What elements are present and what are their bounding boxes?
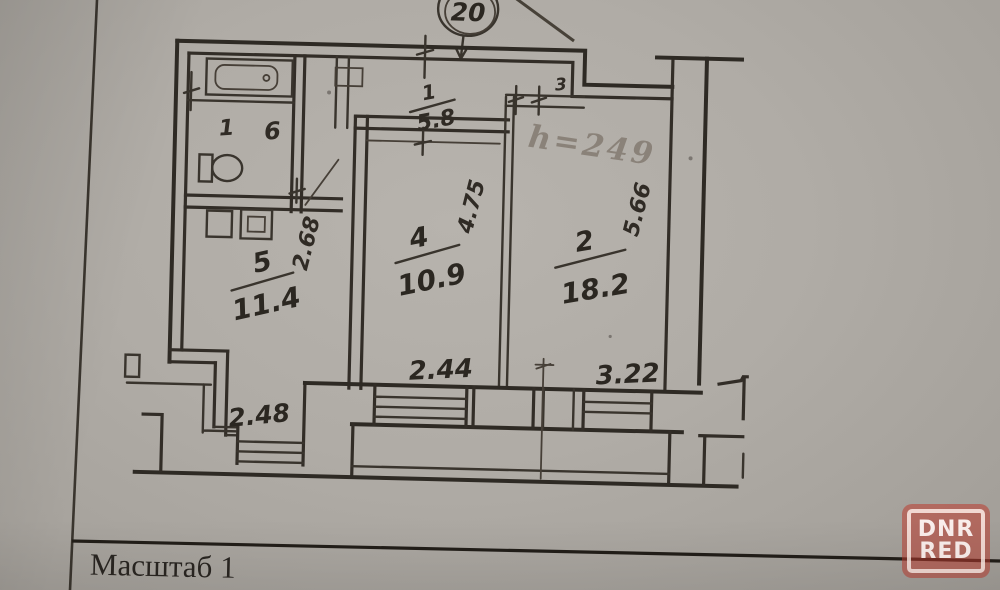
wall-left-inner	[182, 53, 189, 350]
tick-left-wall	[184, 72, 200, 110]
scale-caption: Масштаб 1	[90, 547, 391, 590]
bedroom-window-jambs	[583, 390, 652, 432]
bay-wall-left	[214, 351, 228, 435]
pier-line	[127, 383, 211, 385]
dnr-red-watermark: DNR RED	[902, 504, 990, 578]
dim-kitchen-width: 2.48	[227, 398, 291, 433]
toilet-bowl	[212, 155, 243, 182]
speck	[609, 335, 612, 338]
living-window-jambs	[374, 385, 467, 427]
room4-number: 4	[406, 221, 432, 255]
balcony-inner-edge	[352, 466, 669, 474]
plan-circle-number: 20	[450, 0, 485, 27]
speck	[327, 90, 331, 94]
hall-number: 3	[554, 75, 567, 96]
plan-drawing: 20	[0, 0, 1000, 590]
living-window	[374, 397, 466, 419]
room2-number: 2	[573, 225, 597, 259]
left-piers	[123, 355, 238, 473]
wall-bath-bottom	[185, 195, 341, 211]
dim-top-whole: 1	[420, 79, 438, 105]
paper-corner-edge	[514, 0, 574, 41]
tick-entry-1	[509, 86, 524, 114]
page-border-left	[70, 0, 97, 590]
balcony-door	[473, 387, 534, 428]
photographed-plan-page: 20	[0, 0, 1000, 590]
wall-right-inner	[665, 61, 673, 391]
dim-bedroom-depth: 5.66	[619, 180, 657, 239]
sink	[207, 211, 233, 238]
wall-living-bedroom	[499, 97, 514, 388]
room4-area: 10.9	[394, 257, 468, 303]
room2-area: 18.2	[559, 267, 633, 311]
pier-block	[125, 355, 140, 377]
neighbor-wall-v	[743, 379, 744, 419]
window-pier	[543, 389, 574, 430]
window-wall	[304, 383, 701, 433]
bath-number: 6	[263, 117, 281, 146]
kitchen-fixtures	[206, 209, 272, 240]
height-note: h=249	[526, 119, 658, 173]
right-wing-walls	[699, 376, 748, 486]
dim-line-58	[367, 140, 500, 143]
neighbor-wall-step	[699, 436, 743, 486]
balcony-sides	[352, 424, 670, 484]
dim-living-depth: 4.75	[453, 177, 491, 237]
dim-bedroom-width: 3.22	[595, 358, 660, 391]
wall-kitchen-living	[349, 116, 368, 388]
neighbor-wall-stub	[743, 454, 744, 478]
pier-l-shape	[142, 414, 162, 470]
stove	[240, 209, 272, 239]
bathtub	[206, 58, 293, 96]
document-edges	[70, 0, 1000, 590]
dnr-red-watermark-frame: DNR RED	[907, 509, 985, 573]
wall-wc-bath-divider	[188, 100, 294, 103]
room5-number: 5	[250, 245, 275, 279]
speck	[689, 156, 693, 160]
bedroom-window	[583, 402, 651, 414]
tick-entry-2	[532, 86, 547, 114]
tick-top-wall	[416, 36, 433, 78]
bathtub-drain	[263, 75, 269, 81]
wall-kitchen-bottom	[169, 350, 227, 363]
stove-inner	[248, 217, 265, 232]
window-wall-bottom	[352, 424, 682, 432]
floor-plan: 20	[123, 0, 757, 487]
dim-kitchen-depth: 2.68	[288, 214, 326, 273]
watermark-line1: DNR	[918, 519, 975, 541]
kitchen-window	[237, 441, 303, 463]
toilet-tank	[199, 154, 213, 181]
wall-hall-bedroom	[506, 95, 584, 108]
plan-number-stamp: 20	[437, 0, 499, 60]
wc-number: 1	[218, 116, 235, 142]
wall-left-outer	[169, 41, 177, 362]
wall-right-outer	[699, 59, 707, 384]
wall-right-cap	[657, 57, 742, 59]
dim-living-width: 2.44	[408, 354, 473, 387]
bathtub-inner	[215, 65, 278, 91]
watermark-line2: RED	[919, 541, 972, 563]
